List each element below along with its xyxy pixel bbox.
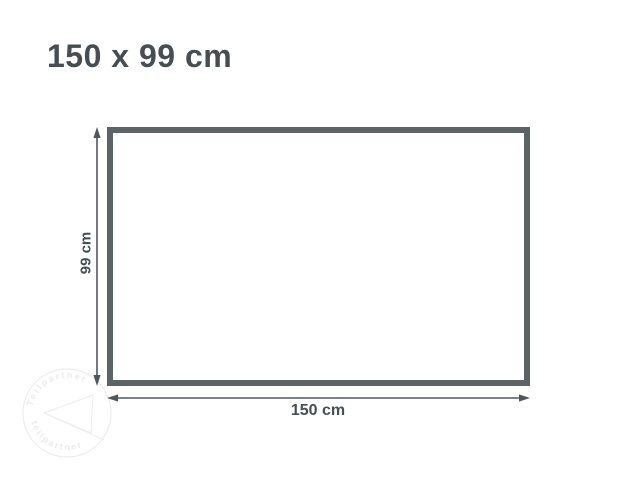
arrow-right-icon — [519, 394, 530, 401]
watermark-circle — [23, 369, 111, 457]
watermark-stamp: Teilpartner teilpartner — [23, 369, 111, 457]
page-title: 150 x 99 cm — [47, 38, 232, 75]
watermark-text-bottom: teilpartner — [29, 420, 84, 452]
width-dimension-label: 150 cm — [291, 402, 345, 420]
dimension-diagram-page: 150 x 99 cm Teilpartner teilpartner — [0, 0, 639, 479]
width-dimension-arrow — [107, 394, 530, 401]
arrow-left-icon — [107, 394, 118, 401]
watermark-triangle-tail — [44, 413, 104, 440]
watermark-triangle-icon — [44, 395, 93, 433]
arrow-down-icon — [93, 375, 100, 386]
arrow-up-icon — [93, 127, 100, 138]
dimension-rectangle — [107, 127, 530, 386]
height-dimension-label: 99 cm — [78, 232, 95, 275]
watermark-text-top: Teilpartner — [25, 370, 90, 407]
